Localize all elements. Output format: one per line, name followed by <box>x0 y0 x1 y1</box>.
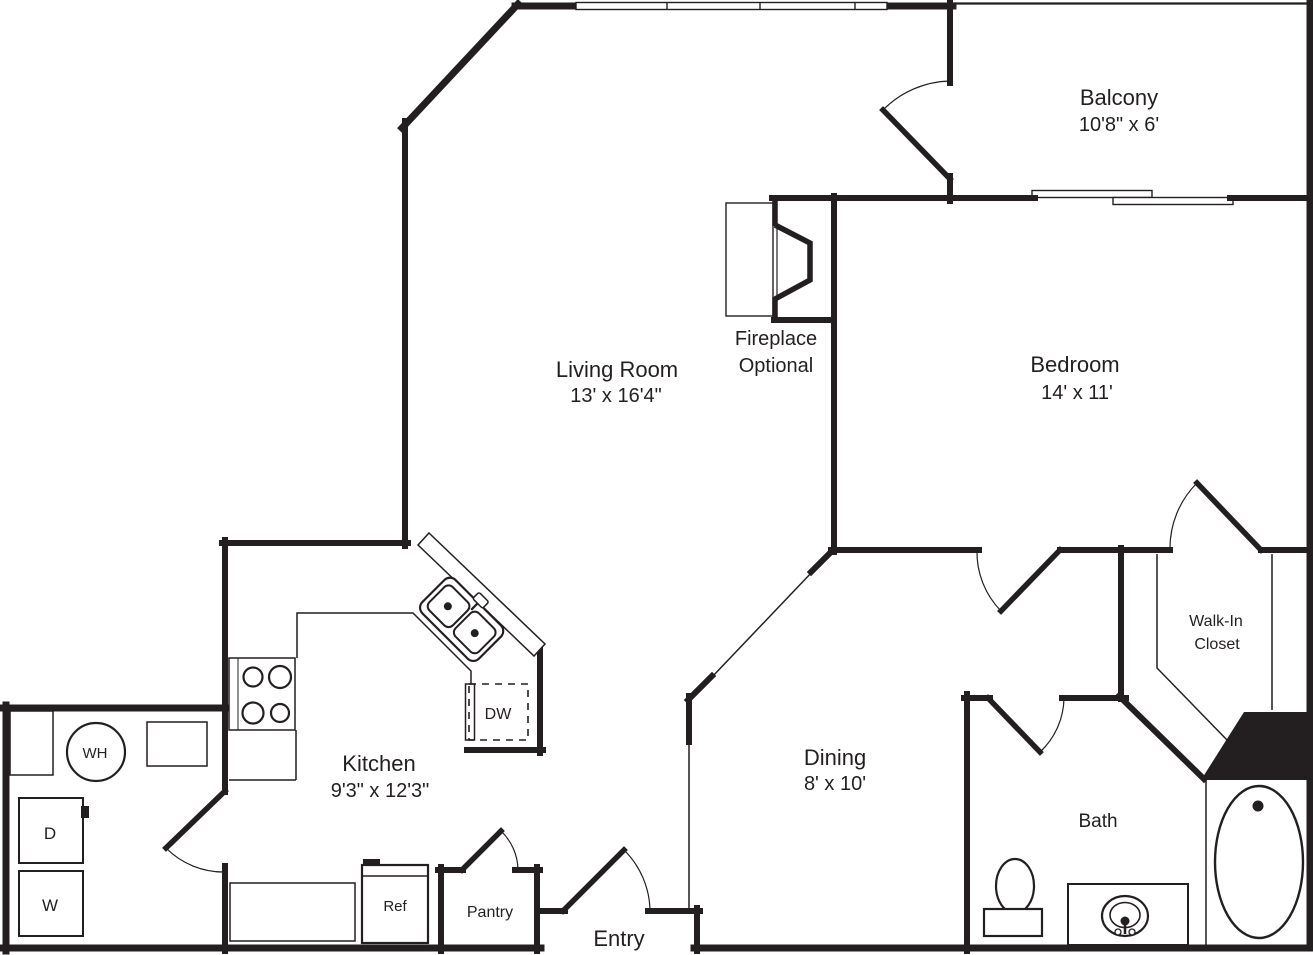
refrigerator-handle <box>363 859 380 866</box>
pantry-door-leaf <box>462 831 501 870</box>
living-room-dims: 13' x 16'4" <box>570 385 661 407</box>
fireplace-hearth <box>726 203 773 316</box>
fireplace <box>726 196 837 320</box>
sliding-door-panel-outer <box>1032 191 1152 198</box>
laundry-fixtures <box>10 711 207 936</box>
walk-in-closet-label-line2: Closet <box>1194 636 1240 653</box>
water-heater-label: WH <box>83 745 108 762</box>
living-room-diagonal-wall <box>402 4 518 128</box>
bath-door-arc <box>1040 698 1064 752</box>
laundry-door-leaf <box>166 791 225 848</box>
exterior-walls <box>3 3 1310 951</box>
closet-door-arc <box>1170 483 1197 550</box>
kitchen-label: Kitchen <box>342 751 415 776</box>
kitchen-south-counter <box>230 883 355 941</box>
bedroom-door-arc <box>977 550 1001 611</box>
dining-opening-line <box>712 571 813 677</box>
dining-dims: 8' x 10' <box>804 773 866 795</box>
toilet-tank <box>984 909 1042 936</box>
fireplace-label-line1: Fireplace <box>735 328 817 350</box>
dining-label: Dining <box>804 745 866 770</box>
bath-door-leaf <box>988 698 1040 752</box>
floor-plan: Balcony 10'8" x 6' Living Room 13' x 16'… <box>0 0 1313 955</box>
dryer-handle <box>81 806 89 818</box>
labels: Balcony 10'8" x 6' Living Room 13' x 16'… <box>42 85 1243 951</box>
pantry-door-arc <box>501 831 518 870</box>
walk-in-closet-label-line1: Walk-In <box>1189 613 1243 630</box>
firebox <box>775 196 810 319</box>
entry-label: Entry <box>593 926 644 951</box>
dishwasher-label: DW <box>485 706 513 723</box>
bath-sink-handle-right <box>1129 929 1135 935</box>
refrigerator-label: Ref <box>383 898 407 915</box>
utility-shelf-corner <box>10 711 53 775</box>
bedroom-door-leaf <box>1001 550 1060 611</box>
fireplace-label-line2: Optional <box>739 355 814 377</box>
closet-door-leaf <box>1197 483 1261 550</box>
sliding-door-panel-inner <box>1113 198 1233 205</box>
burner-icon <box>243 703 264 724</box>
laundry-door-arc <box>166 848 225 872</box>
kitchen-fixtures <box>229 533 545 943</box>
pantry-label: Pantry <box>467 904 513 921</box>
interior-walls <box>222 3 1310 951</box>
entry-door-arc <box>624 850 650 911</box>
balcony-door-leaf <box>883 110 950 179</box>
balcony-dims: 10'8" x 6' <box>1079 114 1159 136</box>
sink-outline <box>417 574 507 664</box>
dryer-label: D <box>44 824 56 843</box>
balcony-door-arc <box>883 81 950 110</box>
kitchen-dims: 9'3" x 12'3" <box>331 780 430 802</box>
entry-door-leaf <box>563 850 624 911</box>
living-room-label: Living Room <box>556 357 678 382</box>
bedroom-dims: 14' x 11' <box>1041 382 1113 404</box>
closet-corner-wall-fill <box>1201 712 1310 780</box>
bath-sink-handle-left <box>1115 929 1121 935</box>
burner-icon <box>269 666 291 688</box>
dishwasher-door-edge <box>466 684 475 740</box>
utility-shelf <box>147 722 207 766</box>
living-room-window-band <box>576 3 887 10</box>
toilet-bowl <box>996 859 1034 913</box>
balcony-label: Balcony <box>1080 85 1158 110</box>
bath-fixtures <box>984 786 1303 945</box>
burner-icon <box>271 704 289 722</box>
washer-label: W <box>42 896 58 915</box>
closet-diagonal-wall <box>1119 696 1204 779</box>
floor-plan-page: Balcony 10'8" x 6' Living Room 13' x 16'… <box>0 0 1313 955</box>
bath-label: Bath <box>1078 811 1117 832</box>
bedroom-label: Bedroom <box>1030 352 1119 377</box>
bathtub-drain <box>1253 801 1264 812</box>
burner-icon <box>244 668 263 687</box>
